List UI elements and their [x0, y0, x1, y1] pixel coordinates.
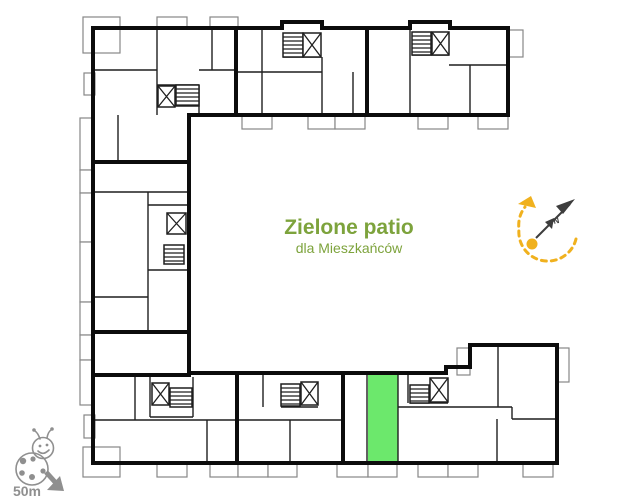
floor-plan-page: Zielone patio dla Mieszkańców N	[0, 0, 630, 500]
core-bottom-right	[410, 378, 448, 403]
core-top-left	[158, 85, 199, 107]
core-left-wing	[164, 213, 186, 264]
patio-title: Zielone patio	[284, 216, 414, 239]
north-arrow-icon: N	[518, 196, 576, 261]
patio-label: Zielone patio dla Mieszkańców	[284, 216, 414, 256]
core-top-right	[412, 32, 449, 55]
core-top-middle	[283, 33, 321, 57]
north-label: N	[553, 216, 561, 226]
floor-plan: Zielone patio dla Mieszkańców N	[0, 0, 630, 500]
compass-arrowhead	[518, 196, 536, 208]
compass-dot	[527, 239, 538, 250]
arrow-down-right-icon	[46, 472, 64, 491]
core-bottom-left	[152, 383, 192, 407]
highlighted-unit[interactable]	[368, 375, 398, 463]
core-bottom-middle	[281, 382, 318, 406]
patio-subtitle: dla Mieszkańców	[296, 240, 403, 256]
scale-label: 50m	[13, 483, 41, 499]
scale-indicator: 50m	[13, 427, 64, 499]
